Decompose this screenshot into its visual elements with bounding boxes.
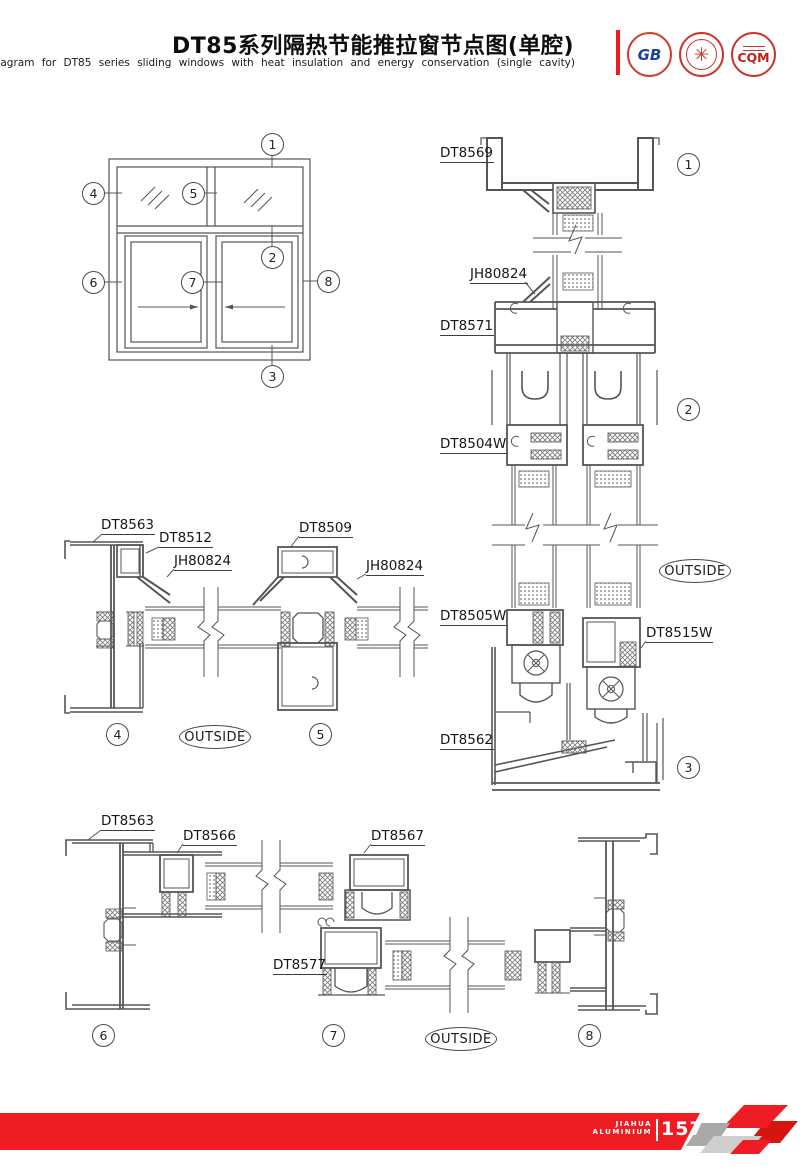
label-jh80824-left: JH80824 (174, 554, 232, 571)
elevation-callout-7: 7 (181, 271, 204, 294)
section-callout-4: 4 (106, 723, 129, 746)
footer-divider (656, 1119, 658, 1141)
label-jh80824-right: JH80824 (366, 559, 424, 576)
bottom-section-drawing (60, 810, 660, 1065)
label-dt8515w: DT8515W (646, 626, 713, 643)
mid-section-drawing (60, 515, 430, 755)
label-dt8569: DT8569 (440, 146, 494, 163)
page-subtitle: Node diagram for DT85 series sliding win… (0, 57, 575, 69)
section-callout-6: 6 (92, 1024, 115, 1047)
label-dt8563-mid: DT8563 (101, 518, 155, 535)
label-dt8504w: DT8504W (440, 437, 507, 454)
cqm-logo-text: CQM (737, 52, 769, 63)
footer-brand-line2: ALUMINIUM (593, 1128, 653, 1136)
elevation-callout-1: 1 (261, 133, 284, 156)
elevation-callout-6: 6 (82, 271, 105, 294)
section-callout-2: 2 (677, 398, 700, 421)
vertical-section-drawing (435, 125, 735, 795)
label-dt8563-bottom: DT8563 (101, 814, 155, 831)
section-callout-5: 5 (309, 723, 332, 746)
label-dt8512: DT8512 (159, 531, 213, 548)
section-callout-3: 3 (677, 756, 700, 779)
elevation-callout-3: 3 (261, 365, 284, 388)
label-dt8566: DT8566 (183, 829, 237, 846)
certification-logo: ✳ (679, 32, 724, 77)
cqm-logo: CQM (731, 32, 776, 77)
outside-tag-vertical: OUTSIDE (659, 559, 731, 583)
label-dt8562: DT8562 (440, 733, 494, 750)
elevation-callout-8: 8 (317, 270, 340, 293)
gb-logo: GB (627, 32, 672, 77)
elevation-callout-4: 4 (82, 182, 105, 205)
catalog-page: DT85系列隔热节能推拉窗节点图(单腔) Node diagram for DT… (0, 0, 800, 1167)
window-elevation-drawing (60, 130, 350, 395)
label-dt8571: DT8571 (440, 319, 494, 336)
label-dt8577: DT8577 (273, 958, 327, 975)
label-dt8505w: DT8505W (440, 609, 507, 626)
section-callout-7: 7 (322, 1024, 345, 1047)
page-number: 157 (661, 1118, 704, 1140)
section-callout-8: 8 (578, 1024, 601, 1047)
title-divider (616, 30, 620, 75)
outside-tag-bottom: OUTSIDE (425, 1027, 497, 1051)
page-title: DT85系列隔热节能推拉窗节点图(单腔) (172, 28, 574, 60)
certification-logo-mark: ✳ (686, 39, 717, 70)
label-jh80824-vertical: JH80824 (470, 267, 528, 284)
section-callout-1: 1 (677, 153, 700, 176)
elevation-callout-5: 5 (182, 182, 205, 205)
outside-tag-mid: OUTSIDE (179, 725, 251, 749)
label-dt8509: DT8509 (299, 521, 353, 538)
gb-logo-text: GB (638, 46, 662, 64)
elevation-callout-2: 2 (261, 246, 284, 269)
label-dt8567: DT8567 (371, 829, 425, 846)
footer-brand-line1: JIAHUA (593, 1120, 653, 1128)
footer-brand: JIAHUA ALUMINIUM (593, 1120, 653, 1136)
